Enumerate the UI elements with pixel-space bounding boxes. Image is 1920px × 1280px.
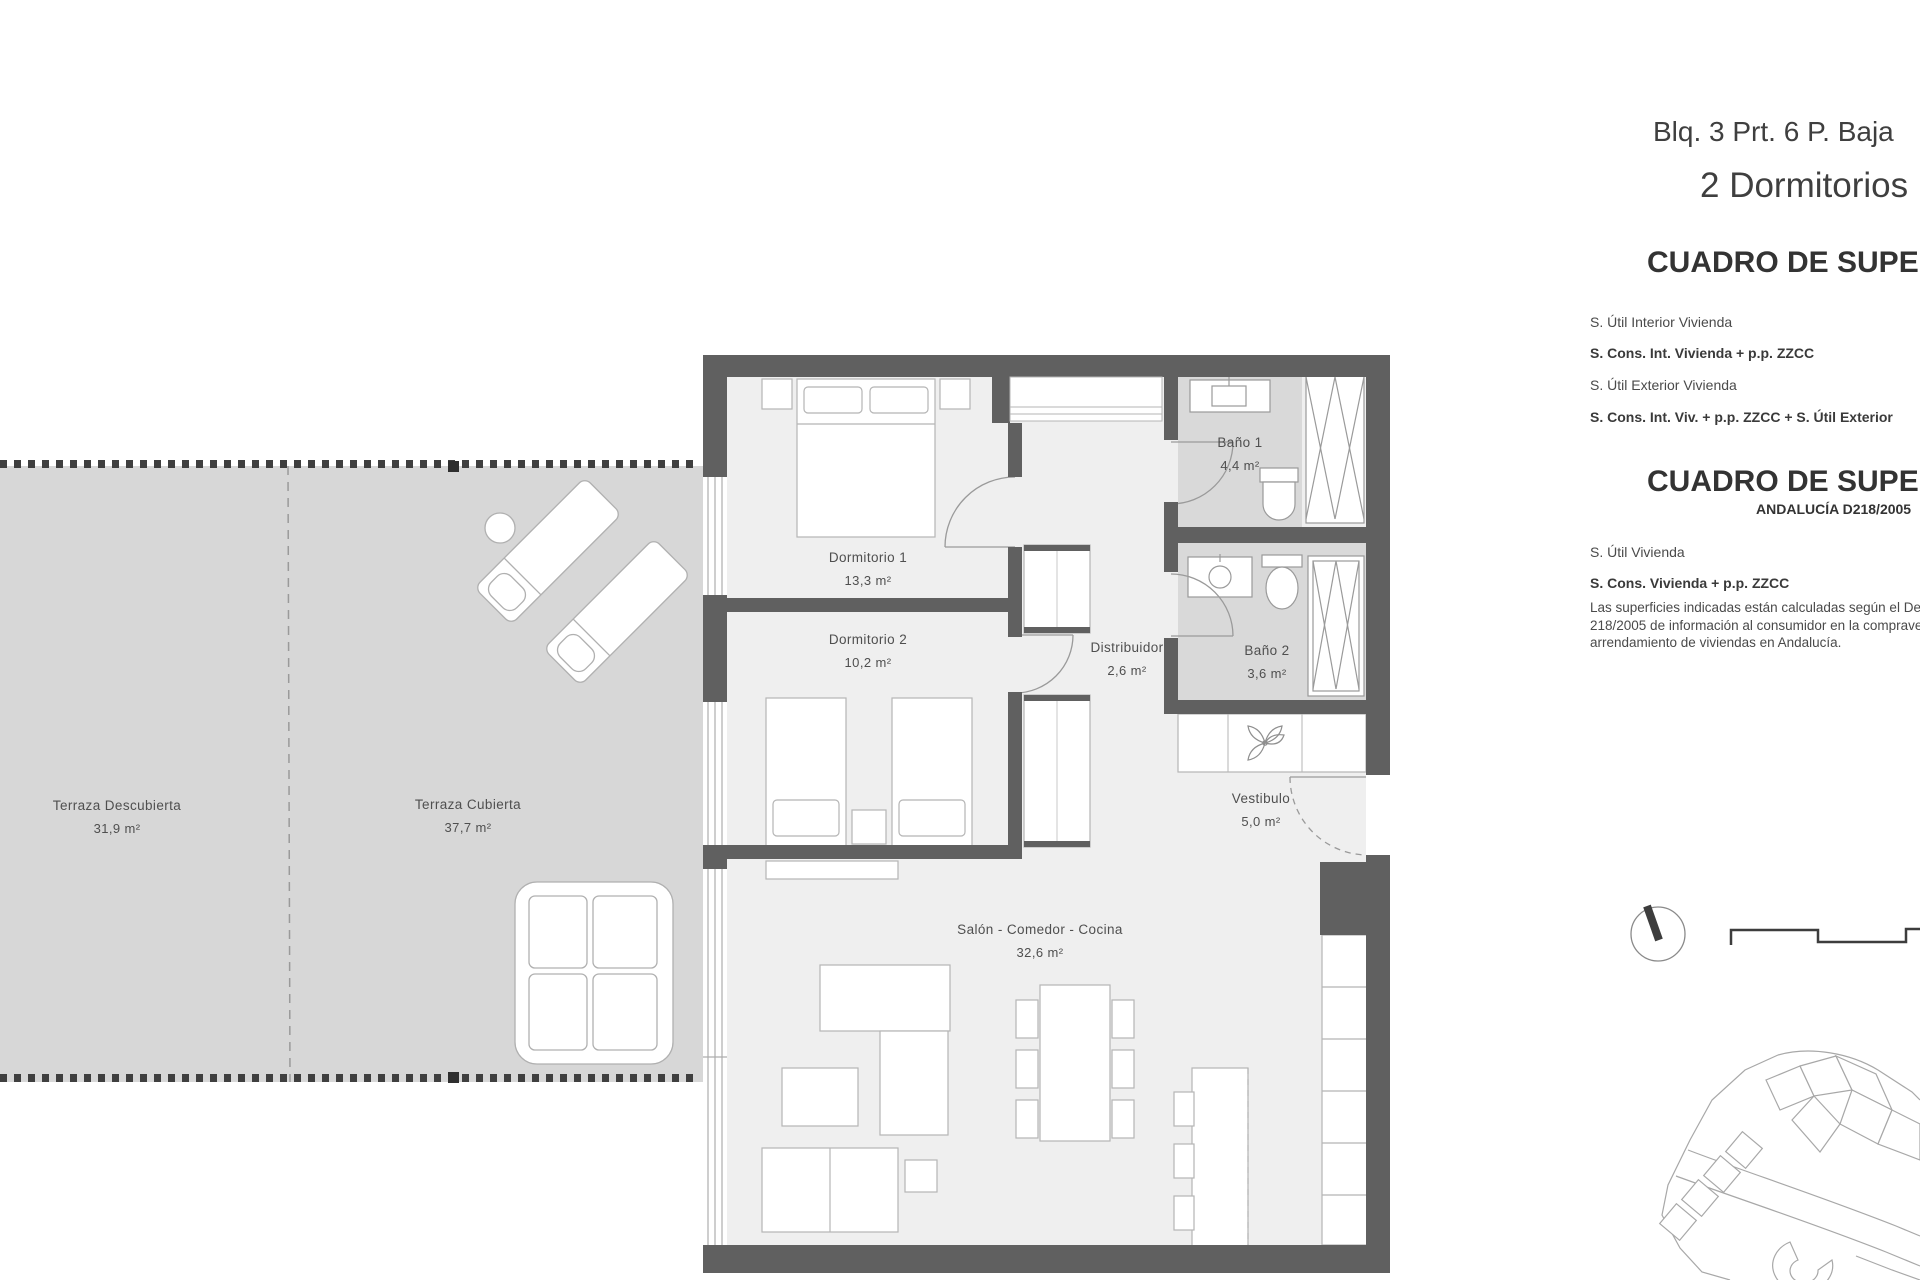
window-bay [1010,377,1162,421]
nightstand [940,379,970,409]
surface-table-2-heading: CUADRO DE SUPERFICIES [1647,465,1920,499]
sliding-door-dorm2 [703,702,727,845]
surface-row: S. Cons. Int. Viv. + p.p. ZZCC + S. Útil… [1590,409,1893,425]
north-arrow-icon [1631,906,1685,961]
label-dormitorio2: Dormitorio 2 10,2 m² [829,633,907,669]
label-vestibulo: Vestibulo 5,0 m² [1232,792,1290,828]
wall-kitchen-column [1320,862,1390,935]
wall-dorm2-salon [703,845,1022,859]
label-dormitorio1: Dormitorio 1 13,3 m² [829,551,907,587]
wall-bano1-bano2 [1164,527,1366,543]
chair [1112,1000,1134,1038]
toilet-bowl [1266,567,1298,609]
plan-title-block: Blq. 3 Prt. 6 P. Baja [1653,116,1894,148]
label-salon: Salón - Comedor - Cocina 32,6 m² [957,923,1123,959]
legal-note-line: arrendamiento de viviendas en Andalucía. [1590,635,1841,650]
legal-note-line: Las superficies indicadas están calculad… [1590,600,1920,615]
toilet-bowl [1263,482,1295,520]
scale-bar [1731,929,1920,945]
chair [1112,1050,1134,1088]
label-terraza-descubierta: Terraza Descubierta 31,9 m² [53,799,181,835]
chair [1016,1100,1038,1138]
wall-dorm1-dorm2 [703,598,1022,612]
stool [1174,1144,1194,1178]
sofa-section [880,1031,948,1135]
surface-table-1-heading: CUADRO DE SUPERFICIES [1647,246,1920,280]
surface-row: S. Útil Interior Vivienda [1590,314,1732,330]
dining-table [1040,985,1110,1141]
kitchen-island [1192,1068,1248,1246]
toilet-tank [1260,468,1298,482]
wall-bottom [703,1245,1390,1273]
outdoor-sofa [515,882,673,1064]
chair [1016,1050,1038,1088]
label-distribuidor: Distribuidor 2,6 m² [1090,641,1163,677]
site-plan-map [1660,1051,1920,1280]
sofa-chaise [820,965,950,1031]
surface-row: S. Útil Vivienda [1590,544,1685,560]
surface-row: S. Útil Exterior Vivienda [1590,377,1737,393]
floorplan-page: { "title": { "line1": "Blq. 3 Prt. 6 P. … [0,0,1920,1280]
coffee-table [782,1068,858,1126]
tv-sideboard [766,861,898,879]
laundry-niche [1178,714,1366,772]
wall-top [703,355,1390,377]
side-table [485,513,515,543]
label-bano1: Baño 1 4,4 m² [1217,436,1262,472]
toilet-tank [1262,555,1302,567]
nightstand [852,810,886,844]
armrest [905,1160,937,1192]
nightstand [762,379,792,409]
wall-bano2-vestibulo [1164,700,1366,714]
surface-table-2-subheading: ANDALUCÍA D218/2005 [1756,501,1911,517]
wardrobe [1306,375,1364,523]
stool [1174,1092,1194,1126]
chair [1016,1000,1038,1038]
closets [1024,545,1090,847]
label-bano2: Baño 2 3,6 m² [1244,644,1289,680]
plan-title-bedrooms: 2 Dormitorios [1700,166,1908,206]
label-terraza-cubierta: Terraza Cubierta 37,7 m² [415,798,521,834]
legal-note-line: 218/2005 de información al consumidor en… [1590,618,1920,633]
stool [1174,1196,1194,1230]
sliding-door-salon [703,869,727,1245]
sliding-door-dorm1 [703,477,727,595]
surface-row: S. Cons. Int. Vivienda + p.p. ZZCC [1590,345,1814,361]
chair [1112,1100,1134,1138]
entry-door-opening [1366,775,1390,855]
surface-row: S. Cons. Vivienda + p.p. ZZCC [1590,575,1789,591]
